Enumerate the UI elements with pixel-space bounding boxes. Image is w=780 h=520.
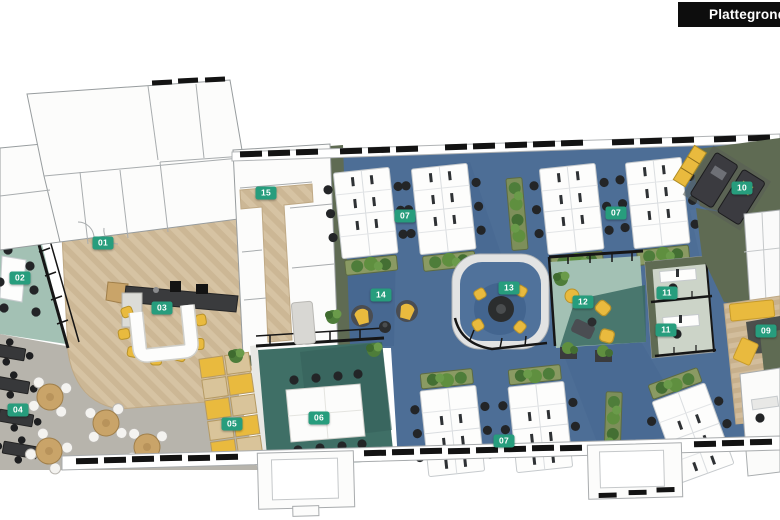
room-marker-15: 15 <box>256 187 277 200</box>
room-marker-14: 14 <box>371 289 392 302</box>
entrance-vestibule <box>587 443 682 499</box>
meeting-pod-13 <box>452 254 549 349</box>
room-marker-06: 06 <box>309 412 330 425</box>
room-marker-11: 11 <box>657 287 678 300</box>
room-marker-11: 11 <box>656 324 677 337</box>
room-marker-01: 01 <box>93 237 114 250</box>
entrance-vestibule <box>257 451 355 517</box>
room-marker-07: 07 <box>395 210 416 223</box>
room-marker-09: 09 <box>756 325 777 338</box>
room-marker-04: 04 <box>8 404 29 417</box>
room-marker-05: 05 <box>222 418 243 431</box>
room-marker-02: 02 <box>10 272 31 285</box>
storage-block-15 <box>233 144 350 366</box>
room-marker-13: 13 <box>499 282 520 295</box>
floorplan-rendering <box>0 0 780 520</box>
floorplan-title: Plattegrond 6 <box>709 7 780 22</box>
title-bar: Plattegrond 6 <box>678 2 780 27</box>
focus-rooms-11 <box>645 256 716 358</box>
room-marker-03: 03 <box>152 302 173 315</box>
room-marker-12: 12 <box>573 296 594 309</box>
room-marker-07: 07 <box>606 207 627 220</box>
floorplan-canvas: 0102030405060707070910111112131415 Platt… <box>0 0 780 520</box>
room-marker-10: 10 <box>732 182 753 195</box>
room-marker-07: 07 <box>494 435 515 448</box>
